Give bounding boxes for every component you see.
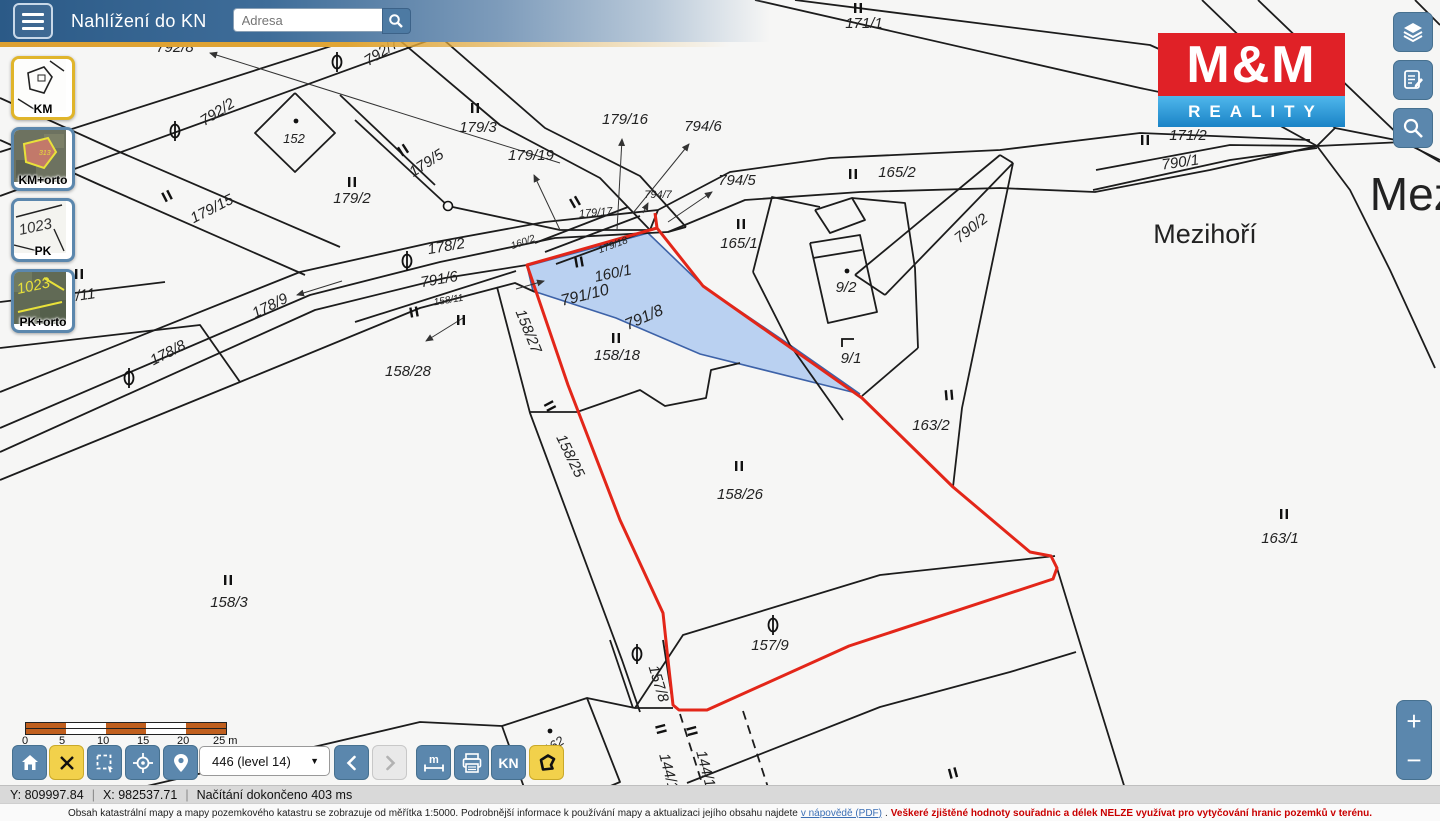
parcel-label-158-3: 158/3 (210, 594, 248, 611)
parcel-label-158-28: 158/28 (385, 363, 432, 380)
parcel-label-Meziho--: Mezihoří (1370, 168, 1440, 220)
chevron-left-icon (344, 755, 360, 771)
separator: | (185, 788, 188, 802)
parcel-label-158-26: 158/26 (717, 486, 764, 503)
layer-button-label: KM (14, 102, 72, 116)
svg-text:313: 313 (39, 150, 51, 157)
header-accent-strip (0, 42, 770, 47)
parcel-label-163-1: 163/1 (1261, 530, 1299, 547)
parcel-label-794-7: 794/7 (644, 189, 672, 201)
status-bar: Y: 809997.84 | X: 982537.71 | Načítání d… (0, 785, 1440, 804)
logo-text-mm: M&M (1158, 33, 1345, 96)
separator: | (92, 788, 95, 802)
zoom-control: + − (1396, 700, 1432, 780)
printer-icon (461, 752, 483, 774)
parcel-label-171-2: 171/2 (1169, 127, 1207, 144)
zoom-out-button[interactable]: − (1397, 740, 1431, 779)
coordinate-y: Y: 809997.84 (10, 788, 84, 802)
parcel-export-button[interactable] (529, 745, 564, 780)
chevron-right-icon (382, 755, 398, 771)
close-icon (58, 754, 76, 772)
mm-reality-logo: M&M REALITY (1158, 33, 1345, 127)
address-search-input[interactable] (233, 8, 382, 32)
building-dot (548, 729, 553, 734)
parcel-label-157-9: 157/9 (751, 637, 789, 654)
menu-icon[interactable] (13, 3, 53, 39)
parcel-label-165-1: 165/1 (720, 235, 758, 252)
map-pin-icon (172, 753, 190, 773)
map-search-button[interactable] (1393, 108, 1433, 148)
layer-button-label: PK+orto (14, 315, 72, 329)
disclaimer-text: Obsah katastrální mapy a mapy pozemkovéh… (68, 808, 798, 819)
parcel-polygon-icon (536, 752, 558, 774)
coordinate-x: X: 982537.71 (103, 788, 177, 802)
app-window: 171/14/2792/8792/7792/2152179/3179/16794… (0, 0, 1440, 821)
map-level-value: 446 (level 14) (212, 754, 310, 769)
load-status: Načítání dokončeno 403 ms (197, 788, 353, 802)
parcel-label-179-19: 179/19 (508, 147, 555, 164)
marker-button[interactable] (163, 745, 198, 780)
locate-button[interactable] (125, 745, 160, 780)
address-search (233, 8, 411, 34)
history-back-button[interactable] (334, 745, 369, 780)
parcel-label-9-2: 9/2 (836, 279, 858, 296)
header-bar: Nahlížení do KN (0, 0, 770, 42)
map-level-select[interactable]: 446 (level 14) ▼ (199, 746, 330, 776)
crosshair-icon (132, 752, 154, 774)
history-forward-button[interactable] (372, 745, 407, 780)
magnifier-icon (1402, 117, 1424, 139)
help-pdf-link[interactable]: v nápovědě (PDF) (801, 808, 882, 819)
zoom-in-button[interactable]: + (1397, 701, 1431, 740)
parcel-label-179-16: 179/16 (602, 111, 649, 128)
parcel-label-794-5: 794/5 (718, 172, 756, 189)
search-button[interactable] (382, 8, 411, 34)
kn-info-button[interactable]: KN (491, 745, 526, 780)
print-button[interactable] (454, 745, 489, 780)
parcel-label-171-1: 171/1 (845, 15, 883, 32)
parcel-label-152: 152 (283, 131, 305, 146)
home-icon (20, 753, 40, 773)
parcel-label-Meziho--: Mezihoří (1153, 219, 1257, 249)
layer-button-km[interactable]: KM (11, 56, 75, 120)
parcel-label-163-2: 163/2 (912, 417, 950, 434)
note-edit-icon (1402, 69, 1424, 91)
building-dot (845, 269, 850, 274)
home-button[interactable] (12, 745, 47, 780)
report-button[interactable] (1393, 60, 1433, 100)
logo-text-reality: REALITY (1158, 96, 1345, 127)
layer-button-label: PK (14, 244, 72, 258)
app-title: Nahlížení do KN (71, 11, 207, 32)
parcel-label-158-18: 158/18 (594, 347, 641, 364)
scale-bar (25, 722, 227, 735)
area-select-button[interactable] (87, 745, 122, 780)
building-dot (294, 119, 299, 124)
measure-button[interactable]: m (416, 745, 451, 780)
parcel-label-794-6: 794/6 (684, 118, 722, 135)
boundary-point-symbol (444, 202, 453, 211)
parcel-label-179-3: 179/3 (459, 119, 497, 136)
parcel-label-165-2: 165/2 (878, 164, 916, 181)
layer-button-label: KM+orto (14, 173, 72, 187)
search-icon (388, 13, 404, 29)
parcel-label-179-2: 179/2 (333, 190, 371, 207)
chevron-down-icon: ▼ (310, 756, 319, 766)
layers-icon (1401, 20, 1425, 44)
footer-disclaimer: Obsah katastrální mapy a mapy pozemkovéh… (0, 803, 1440, 821)
layer-button-pk-orto[interactable]: 1023 PK+orto (11, 269, 75, 333)
svg-text:m: m (429, 754, 439, 766)
clear-selection-button[interactable] (49, 745, 84, 780)
layer-button-km-orto[interactable]: 313 KM+orto (11, 127, 75, 191)
parcel-label-9-1: 9/1 (841, 350, 862, 367)
layer-button-pk[interactable]: 1023 PK (11, 198, 75, 262)
layers-button[interactable] (1393, 12, 1433, 52)
measure-icon: m (423, 752, 445, 774)
kn-label: KN (498, 755, 518, 771)
disclaimer-warning: Veškeré zjištěné hodnoty souřadnic a dél… (891, 808, 1372, 819)
dashed-rectangle-icon (95, 753, 115, 773)
